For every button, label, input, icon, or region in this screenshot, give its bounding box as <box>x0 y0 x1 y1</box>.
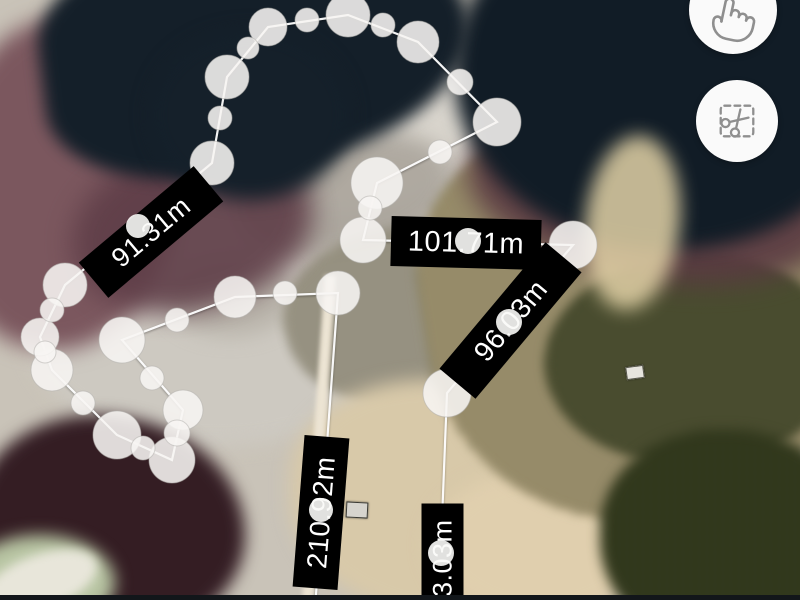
midpoint-handle[interactable] <box>428 140 452 164</box>
vertex-handle[interactable] <box>397 21 439 63</box>
midpoint-handle[interactable] <box>496 309 522 335</box>
midpoint-handle[interactable] <box>165 308 189 332</box>
midpoint-handle[interactable] <box>237 37 259 59</box>
measurement-overlay <box>0 0 800 600</box>
midpoint-handle[interactable] <box>428 540 454 566</box>
pan-hand-icon <box>706 0 763 48</box>
crop-tool-button[interactable] <box>696 80 778 162</box>
vertex-handle[interactable] <box>340 217 386 263</box>
map-canvas[interactable]: 91.31m 101.71m 96.03m 210.92m 53.03m <box>0 0 800 600</box>
midpoint-handle[interactable] <box>295 8 319 32</box>
vertex-handle[interactable] <box>326 0 370 37</box>
midpoint-handle[interactable] <box>309 498 333 522</box>
midpoint-handle[interactable] <box>164 420 190 446</box>
vertex-handle[interactable] <box>473 98 521 146</box>
vertex-handle[interactable] <box>205 55 249 99</box>
midpoint-handle[interactable] <box>455 228 481 254</box>
midpoint-handle[interactable] <box>371 13 395 37</box>
midpoint-handle[interactable] <box>34 341 56 363</box>
midpoint-handle[interactable] <box>126 214 150 238</box>
midpoint-handle[interactable] <box>273 281 297 305</box>
bottom-bar <box>0 595 800 600</box>
vertex-handle[interactable] <box>214 276 256 318</box>
vertex-handle[interactable] <box>99 317 145 363</box>
vertex-handle[interactable] <box>316 271 360 315</box>
midpoint-handle[interactable] <box>358 196 382 220</box>
midpoint-handle[interactable] <box>140 366 164 390</box>
midpoint-handle[interactable] <box>131 436 155 460</box>
midpoint-handle[interactable] <box>208 106 232 130</box>
midpoint-handle[interactable] <box>447 69 473 95</box>
midpoint-handle[interactable] <box>71 391 95 415</box>
midpoint-handle[interactable] <box>40 298 64 322</box>
crop-scissors-icon <box>714 98 760 144</box>
